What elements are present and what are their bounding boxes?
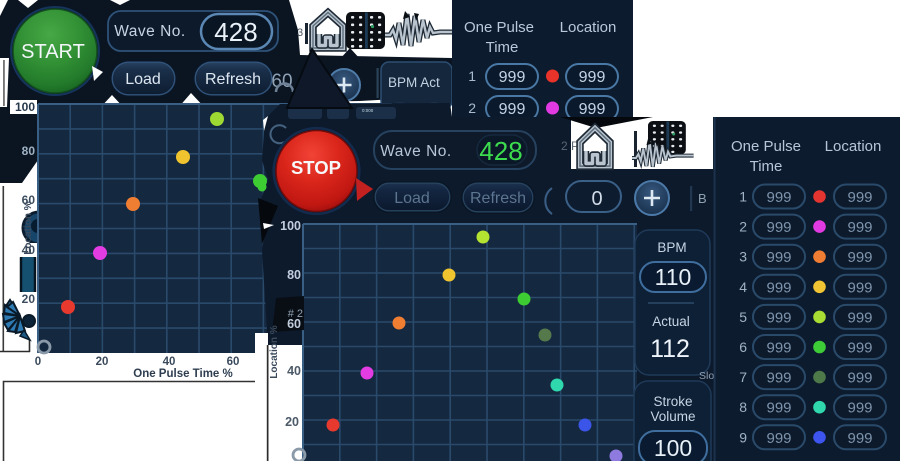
svg-text:B: B [698,191,707,206]
svg-text:999: 999 [766,400,791,417]
svg-text:9: 9 [739,429,747,445]
svg-text:20: 20 [96,356,109,368]
svg-text:40: 40 [163,356,176,368]
svg-text:80: 80 [287,268,301,282]
svg-text:999: 999 [847,189,872,206]
svg-text:999: 999 [766,189,791,206]
svg-text:Load: Load [394,190,430,207]
svg-text:80: 80 [22,144,36,158]
svg-text:Location: Location [560,19,617,36]
svg-text:999: 999 [579,69,606,86]
svg-text:110: 110 [655,264,692,290]
svg-text:Load: Load [125,71,161,88]
svg-text:2: 2 [468,100,476,116]
svg-text:20: 20 [285,415,299,429]
svg-text:999: 999 [766,430,791,447]
svg-text:999: 999 [579,101,606,118]
svg-text:4: 4 [739,279,747,295]
svg-text:999: 999 [847,400,872,417]
svg-text:60: 60 [287,317,301,331]
svg-text:Time: Time [486,39,519,56]
svg-text:999: 999 [847,309,872,326]
svg-text:999: 999 [847,370,872,387]
svg-text:5: 5 [739,309,747,325]
svg-text:Stroke: Stroke [653,394,692,409]
svg-text:Wave No.: Wave No. [114,23,185,40]
svg-text:999: 999 [766,309,791,326]
svg-text:60: 60 [227,356,240,368]
svg-text:999: 999 [766,340,791,357]
svg-text:0:000: 0:000 [362,108,374,113]
svg-text:999: 999 [766,279,791,296]
svg-text:START: START [21,41,85,63]
svg-text:1: 1 [468,68,476,84]
svg-text:999: 999 [847,340,872,357]
svg-text:Refresh: Refresh [205,71,261,88]
svg-text:One Pulse Time %: One Pulse Time % [133,368,233,380]
svg-text:999: 999 [766,249,791,266]
svg-text:Refresh: Refresh [470,190,526,207]
svg-text:428: 428 [479,136,522,166]
svg-text:Location %: Location % [23,201,34,254]
svg-text:7: 7 [739,369,747,385]
svg-text:999: 999 [847,430,872,447]
svg-text:STOP: STOP [291,157,341,178]
svg-text:Location %: Location % [269,325,280,378]
svg-text:Volume: Volume [650,409,695,424]
svg-text:999: 999 [766,219,791,236]
svg-text:6: 6 [739,339,747,355]
svg-text:0: 0 [35,356,41,368]
svg-text:428: 428 [214,17,257,47]
svg-text:20: 20 [22,292,36,306]
svg-text:112: 112 [650,335,690,363]
svg-text:40: 40 [287,364,301,378]
svg-text:100: 100 [280,219,301,233]
svg-text:999: 999 [499,101,526,118]
svg-text:Time: Time [750,158,783,175]
svg-text:100: 100 [654,435,692,461]
svg-text:2: 2 [739,219,747,235]
svg-text:999: 999 [847,249,872,266]
svg-text:60: 60 [271,71,292,92]
svg-text:1: 1 [739,189,747,205]
svg-text:One Pulse: One Pulse [731,138,801,155]
svg-text:Actual: Actual [652,314,690,329]
svg-text:One Pulse: One Pulse [464,19,534,36]
svg-text:0: 0 [591,188,602,210]
svg-text:999: 999 [847,279,872,296]
svg-text:999: 999 [766,370,791,387]
svg-text:BPM: BPM [657,240,686,255]
svg-text:100: 100 [15,100,35,114]
svg-text:Slo: Slo [699,370,714,382]
svg-text:3: 3 [297,27,303,39]
svg-text:8: 8 [739,399,747,415]
svg-text:3: 3 [739,249,747,265]
svg-text:999: 999 [499,69,526,86]
svg-text:Wave No.: Wave No. [380,143,451,160]
svg-text:BPM Act: BPM Act [388,75,440,90]
svg-text:Location: Location [825,138,882,155]
svg-text:999: 999 [847,219,872,236]
